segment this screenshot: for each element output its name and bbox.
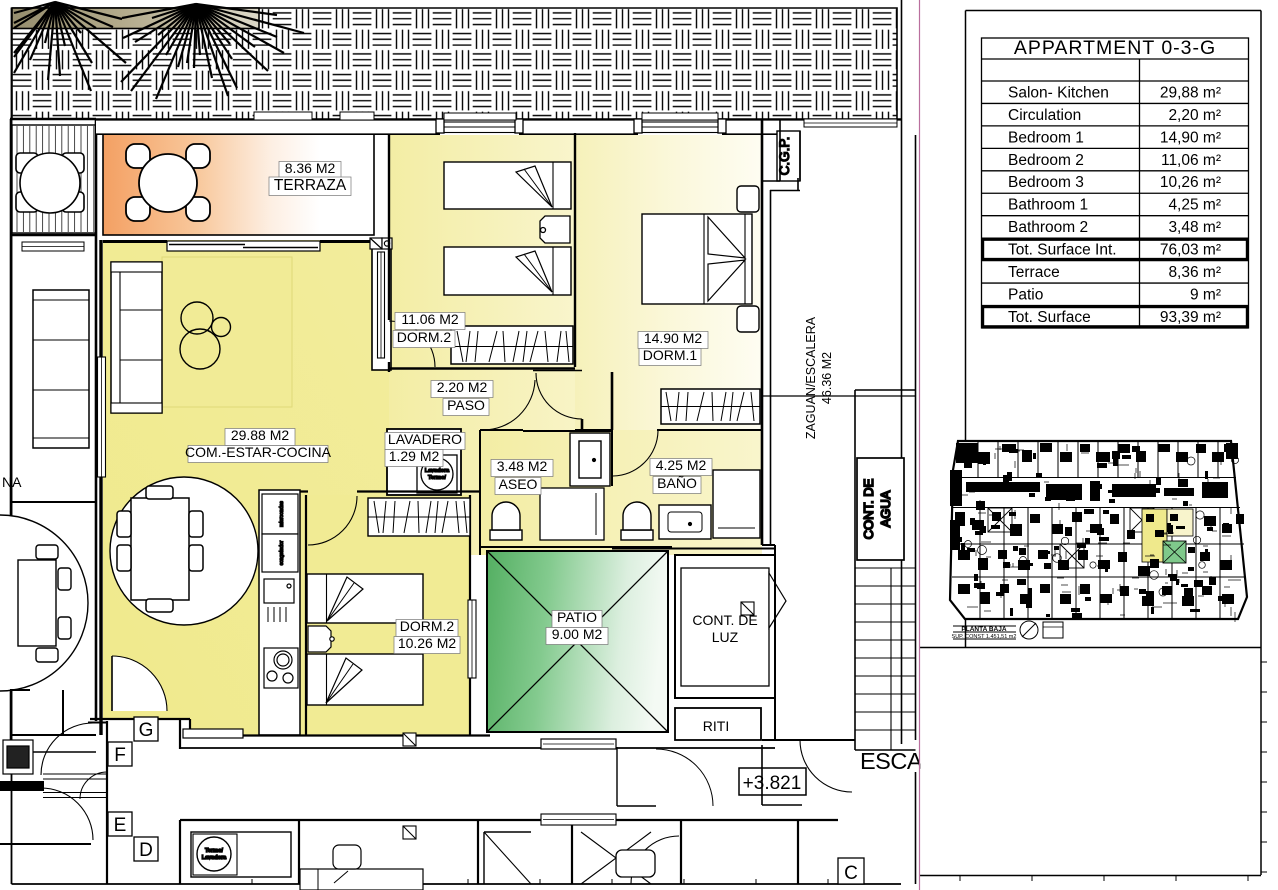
svg-text:2.20 M2: 2.20 M2 (437, 379, 488, 395)
svg-text:8.36 M2: 8.36 M2 (285, 160, 336, 176)
svg-text:DORM.2: DORM.2 (400, 618, 455, 634)
svg-text:LAVADERO: LAVADERO (388, 431, 462, 447)
svg-text:PLANTA BAJA: PLANTA BAJA (961, 626, 1006, 633)
svg-text:LUZ: LUZ (712, 629, 739, 645)
svg-text:Termo/: Termo/ (428, 475, 446, 481)
svg-text:Lavadora: Lavadora (202, 855, 227, 861)
svg-text:Bedroom 2: Bedroom 2 (1008, 152, 1084, 169)
svg-text:ZAGUAN/ESCALERA: ZAGUAN/ESCALERA (804, 316, 818, 439)
svg-text:11,06 m²: 11,06 m² (1161, 152, 1221, 169)
svg-text:3,48 m²: 3,48 m² (1168, 219, 1221, 236)
svg-text:F: F (114, 745, 126, 766)
svg-text:11.06 M2: 11.06 M2 (401, 311, 459, 327)
svg-text:Circulation: Circulation (1008, 107, 1081, 124)
svg-text:2,20 m²: 2,20 m² (1168, 107, 1221, 124)
svg-text:Termo/: Termo/ (205, 848, 223, 854)
svg-text:8,36 m²: 8,36 m² (1168, 264, 1221, 281)
svg-text:+3.821: +3.821 (743, 773, 802, 794)
svg-text:Bathroom 2: Bathroom 2 (1008, 219, 1088, 236)
svg-text:4,25 m²: 4,25 m² (1168, 197, 1221, 214)
svg-text:ESCA: ESCA (860, 748, 923, 774)
svg-text:Patio: Patio (1008, 286, 1043, 303)
svg-text:E: E (114, 815, 127, 836)
svg-text:Tot. Surface: Tot. Surface (1008, 309, 1091, 326)
svg-text:CONT. DE: CONT. DE (861, 478, 876, 539)
svg-text:COM.-ESTAR-COCINA: COM.-ESTAR-COCINA (185, 444, 332, 460)
svg-text:Tot. Surface Int.: Tot. Surface Int. (1008, 242, 1117, 259)
svg-text:Lavadora: Lavadora (425, 468, 450, 474)
svg-text:Bedroom 3: Bedroom 3 (1008, 174, 1084, 191)
svg-text:PATIO: PATIO (557, 609, 597, 625)
svg-text:G: G (139, 720, 154, 741)
svg-text:14.90 M2: 14.90 M2 (644, 330, 703, 346)
svg-text:DORM.1: DORM.1 (643, 347, 698, 363)
svg-text:Salon- Kitchen: Salon- Kitchen (1008, 84, 1109, 101)
svg-text:RITI: RITI (703, 718, 729, 734)
svg-text:CONT. DE: CONT. DE (692, 612, 757, 628)
svg-text:1.29 M2: 1.29 M2 (389, 448, 440, 464)
svg-text:APPARTMENT 0-3-G: APPARTMENT 0-3-G (1014, 37, 1216, 59)
svg-text:Terrace: Terrace (1008, 264, 1060, 281)
svg-text:Bedroom 1: Bedroom 1 (1008, 129, 1084, 146)
svg-text:4.25 M2: 4.25 M2 (656, 457, 707, 473)
svg-text:93,39 m²: 93,39 m² (1160, 309, 1221, 326)
svg-text:D: D (139, 840, 153, 861)
svg-text:29.88 M2: 29.88 M2 (231, 427, 290, 443)
svg-text:AGUA: AGUA (878, 490, 893, 527)
svg-text:SUP. CONST 1.451,51 m2: SUP. CONST 1.451,51 m2 (952, 634, 1017, 640)
svg-text:29,88 m²: 29,88 m² (1160, 84, 1221, 101)
svg-text:NA: NA (2, 474, 22, 490)
svg-text:BAÑO: BAÑO (657, 475, 697, 491)
svg-text:14,90 m²: 14,90 m² (1160, 129, 1221, 146)
svg-text:DORM.2: DORM.2 (397, 329, 452, 345)
svg-text:76,03 m²: 76,03 m² (1160, 242, 1221, 259)
svg-text:10,26 m²: 10,26 m² (1160, 174, 1221, 191)
svg-text:3.48 M2: 3.48 M2 (497, 458, 548, 474)
svg-text:TERRAZA: TERRAZA (274, 177, 347, 194)
svg-text:Bathroom 1: Bathroom 1 (1008, 197, 1088, 214)
svg-text:10.26 M2: 10.26 M2 (398, 635, 457, 651)
svg-text:C: C (844, 863, 858, 884)
svg-text:microondas: microondas (279, 501, 285, 527)
svg-text:9 m²: 9 m² (1190, 286, 1221, 303)
svg-text:congelador: congelador (279, 540, 285, 565)
svg-text:PASO: PASO (447, 397, 485, 413)
svg-text:ASEO: ASEO (499, 476, 538, 492)
svg-text:9.00 M2: 9.00 M2 (552, 626, 603, 642)
